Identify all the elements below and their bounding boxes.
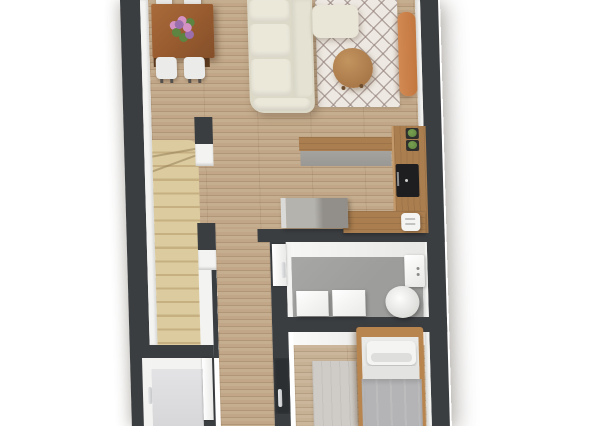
bed-pillow — [367, 341, 417, 365]
toilet-cistern — [404, 255, 425, 287]
potted-plant — [406, 128, 419, 139]
floor-plan-canvas — [0, 0, 600, 426]
cooktop — [396, 164, 420, 197]
hallway-floor — [215, 229, 275, 426]
kitchen-counter-upper-face — [300, 151, 391, 166]
bedroom-door-handle — [278, 389, 283, 407]
sofa-cushion — [249, 0, 290, 22]
kitchen-counter-upper — [299, 137, 392, 151]
dining-table — [151, 4, 215, 58]
sofa-cushion — [251, 59, 292, 96]
washer — [296, 291, 329, 316]
potted-plant — [406, 140, 419, 151]
bedroom-door — [274, 358, 291, 414]
toaster — [401, 213, 421, 231]
dryer — [332, 290, 366, 316]
stair-wall-stub-lower-face — [198, 250, 217, 270]
kitchen-island — [281, 198, 349, 228]
coffee-table — [332, 48, 373, 88]
bed-sheet — [362, 366, 419, 379]
bedroom-north-wall-face — [293, 332, 365, 345]
sofa-cushion — [250, 24, 291, 57]
bed-blanket — [362, 379, 423, 426]
pillow-fold — [371, 353, 412, 362]
stair-wall-stub-upper — [194, 117, 213, 144]
sofa-chaise — [311, 5, 359, 38]
orange-bench — [397, 12, 417, 96]
dining-chair — [184, 57, 206, 79]
storage-door-handle — [148, 387, 152, 404]
flower-bouquet — [175, 20, 184, 29]
storage-room-floor — [151, 369, 204, 426]
toilet — [385, 286, 420, 318]
dining-chair — [156, 57, 178, 79]
storage-door — [202, 358, 214, 420]
floor-plan — [120, 0, 452, 426]
sectional-sofa — [247, 0, 315, 113]
bathroom-door-handle — [281, 262, 285, 278]
stair-wall-stub-upper-face — [195, 144, 214, 166]
wall-storage-north — [140, 345, 214, 358]
bedroom-rug — [312, 361, 358, 426]
sofa-armrest — [253, 98, 311, 111]
sofa-seat — [291, 0, 313, 97]
storage-north-wall-face — [151, 358, 204, 369]
stair-wall-stub-lower — [197, 223, 216, 250]
